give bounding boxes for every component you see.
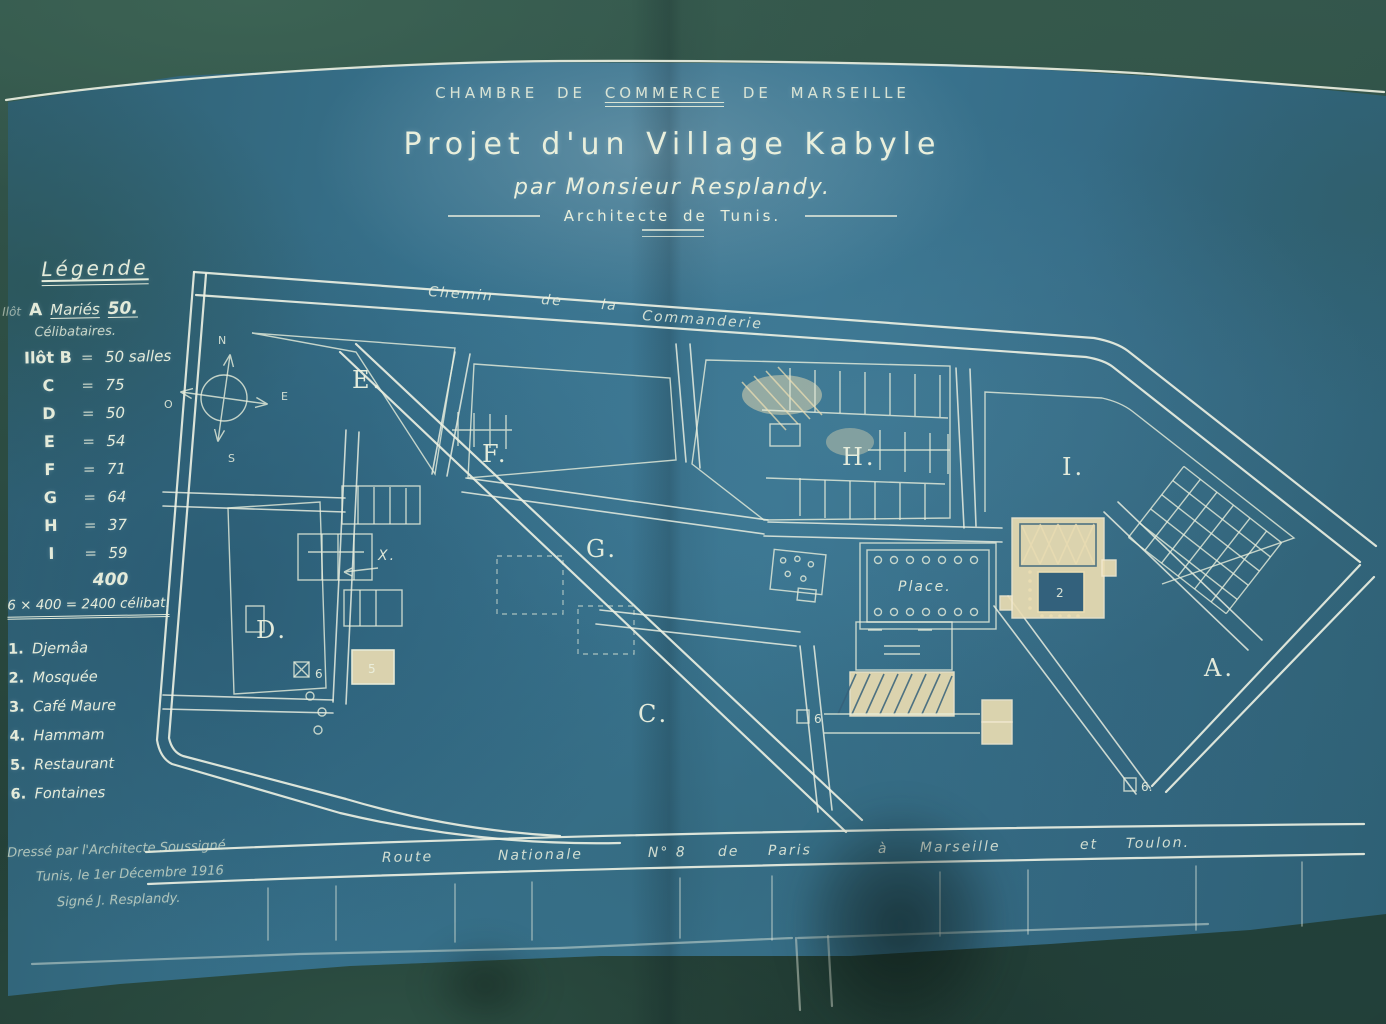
subtitle-double-rule bbox=[642, 229, 704, 237]
place-square: Place. bbox=[860, 543, 996, 629]
legend-ilot-a-line: Ilôt A Mariés 50. bbox=[2, 297, 207, 321]
item-number: 3. bbox=[9, 693, 34, 722]
block-label-c: C. bbox=[638, 700, 669, 728]
title-block: CHAMBRE DE COMMERCE DE MARSEILLE Projet … bbox=[390, 84, 955, 237]
bottom-road-word-7: Marseille bbox=[920, 839, 1001, 856]
block-label-i: I. bbox=[1062, 453, 1085, 481]
legend-row-value: 64 bbox=[99, 482, 189, 512]
legend-item-6: 6. Fontaines bbox=[10, 777, 215, 810]
legend-row-e: E = 54 bbox=[4, 425, 209, 457]
legend-row-label: F bbox=[17, 455, 83, 484]
market-grid bbox=[1128, 466, 1281, 613]
legend-row-label: D bbox=[16, 399, 82, 428]
compass-e-label: E bbox=[281, 390, 288, 403]
item-label: Mosquée bbox=[32, 661, 213, 693]
fountain-number-2: 6 bbox=[814, 712, 822, 726]
mosque-building: 2 bbox=[1000, 518, 1116, 618]
equals-sign: = bbox=[83, 483, 99, 511]
compass-s-label: S bbox=[228, 452, 235, 465]
bottom-road-word-9: Toulon. bbox=[1126, 835, 1190, 852]
legend-formula: 6 × 400 = 2400 célibat. bbox=[7, 595, 170, 620]
legend-item-3: 3. Café Maure bbox=[9, 690, 214, 723]
legend-row-label: Ilôt B bbox=[15, 343, 81, 372]
legend-row-b: Ilôt B = 50 salles bbox=[3, 341, 208, 373]
item-label: Fontaines bbox=[34, 777, 215, 809]
signature-block: Dressé par l'Architecte Soussigné. Tunis… bbox=[7, 831, 289, 917]
equals-sign: = bbox=[82, 399, 98, 427]
item-number: 6. bbox=[10, 780, 35, 809]
legend-row-f: F = 71 bbox=[5, 453, 210, 485]
org-line: CHAMBRE DE COMMERCE DE MARSEILLE bbox=[390, 84, 955, 102]
item-number: 2. bbox=[8, 664, 33, 693]
block-label-f: F. bbox=[482, 440, 509, 468]
legend-panel: Légende Ilôt A Mariés 50. Célibataires. … bbox=[1, 254, 216, 809]
subtitle-row: Architecte de Tunis. bbox=[390, 207, 955, 225]
equals-sign: = bbox=[83, 455, 99, 483]
item-label: Djemâa bbox=[32, 632, 213, 664]
legend-numbered-items: 1. Djemâa 2. Mosquée 3. Café Maure 4. Ha… bbox=[8, 632, 216, 810]
title-row: Projet d'un Village Kabyle bbox=[390, 127, 955, 162]
legend-row-g: G = 64 bbox=[5, 481, 210, 513]
subtitle: Architecte de Tunis. bbox=[564, 207, 781, 225]
item-label: Café Maure bbox=[33, 690, 214, 722]
legend-row-label: G bbox=[17, 483, 83, 512]
bottom-road-word-3: N° 8 bbox=[648, 844, 687, 861]
block-label-d: D. bbox=[256, 616, 288, 644]
item-number: 4. bbox=[9, 722, 34, 751]
legend-row-label: C bbox=[15, 371, 81, 400]
equals-sign: = bbox=[84, 539, 100, 567]
restaurant-number-label: 5 bbox=[368, 662, 376, 676]
legend-total: 400 bbox=[93, 565, 212, 593]
bottom-road-word-2: Nationale bbox=[498, 847, 583, 864]
djemaa-building bbox=[838, 622, 954, 716]
legend-row-h: H = 37 bbox=[6, 509, 211, 541]
byline: par Monsieur Resplandy. bbox=[390, 175, 955, 200]
legend-row-value: 37 bbox=[100, 510, 190, 540]
restaurant-building: 5 bbox=[352, 650, 394, 684]
fountain-number-3: 6. bbox=[1141, 780, 1152, 794]
legend-row-d: D = 50 bbox=[4, 397, 209, 429]
bottom-road-word-8: et bbox=[1080, 837, 1098, 853]
legend-row-value: 50 bbox=[98, 398, 188, 428]
org-part-2-underlined: COMMERCE bbox=[605, 84, 724, 107]
legend-ilot-prefix: Ilôt bbox=[2, 304, 21, 318]
fountain-number-1: 6 bbox=[315, 667, 323, 681]
legend-row-value: 75 bbox=[97, 370, 187, 400]
legend-ilot-word: Mariés bbox=[50, 300, 100, 319]
legend-row-value: 59 bbox=[100, 538, 190, 568]
block-label-e: E. bbox=[352, 366, 383, 394]
subtitle-dash-left bbox=[448, 215, 540, 218]
legend-subhead: Célibataires. bbox=[34, 322, 207, 340]
x-mark-label: X. bbox=[377, 548, 396, 564]
blueprint-photo: 2 Place. bbox=[0, 0, 1386, 1024]
top-road-word-2: de bbox=[541, 292, 564, 309]
bottom-road-word-1: Route bbox=[382, 849, 434, 866]
legend-ilot-value: 50. bbox=[108, 298, 138, 319]
legend-row-c: C = 75 bbox=[3, 369, 208, 401]
legend-item-1: 1. Djemâa bbox=[8, 632, 213, 665]
equals-sign: = bbox=[81, 343, 97, 371]
fountains: 6 6 6. bbox=[294, 662, 1152, 794]
top-road-word-1: Chemin bbox=[428, 284, 495, 305]
legend-row-label: H bbox=[18, 511, 84, 540]
bottom-road-word-4: de bbox=[718, 844, 740, 860]
legend-row-value: 71 bbox=[99, 454, 189, 484]
legend-row-label: E bbox=[16, 427, 82, 456]
legend-item-5: 5. Restaurant bbox=[10, 748, 215, 781]
legend-row-value: 54 bbox=[98, 426, 188, 456]
equals-sign: = bbox=[84, 511, 100, 539]
block-label-a: A. bbox=[1203, 654, 1235, 682]
legend-item-4: 4. Hammam bbox=[9, 719, 214, 752]
legend-item-2: 2. Mosquée bbox=[8, 661, 213, 694]
garden-plot bbox=[769, 549, 826, 602]
block-label-g: G. bbox=[586, 535, 618, 563]
compass-n-label: N bbox=[218, 334, 226, 347]
subtitle-dash-right bbox=[805, 215, 897, 218]
block-label-h: H. bbox=[842, 443, 877, 471]
org-part-1: CHAMBRE DE bbox=[435, 84, 586, 102]
west-building-cluster: X. bbox=[298, 486, 420, 626]
place-label: Place. bbox=[898, 579, 952, 595]
item-label: Restaurant bbox=[34, 748, 215, 780]
item-number: 1. bbox=[8, 635, 33, 664]
roads bbox=[146, 272, 1376, 942]
org-part-3: DE MARSEILLE bbox=[743, 84, 910, 102]
equals-sign: = bbox=[81, 371, 97, 399]
item-number: 5. bbox=[10, 751, 35, 780]
mosque-number-label: 2 bbox=[1056, 586, 1064, 600]
legend-heading: Légende bbox=[41, 255, 149, 286]
page-title: Projet d'un Village Kabyle bbox=[404, 127, 942, 162]
bottom-road-word-6: à bbox=[878, 841, 889, 857]
bottom-road-word-5: Paris bbox=[768, 842, 812, 859]
top-road-word-3: la bbox=[601, 297, 619, 314]
legend-row-value: 50 salles bbox=[97, 342, 187, 372]
equals-sign: = bbox=[82, 427, 98, 455]
legend-row-i: I = 59 bbox=[6, 537, 211, 569]
legend-ilot-letter: A bbox=[29, 300, 43, 320]
item-label: Hammam bbox=[33, 719, 214, 751]
legend-row-label: I bbox=[18, 539, 84, 568]
